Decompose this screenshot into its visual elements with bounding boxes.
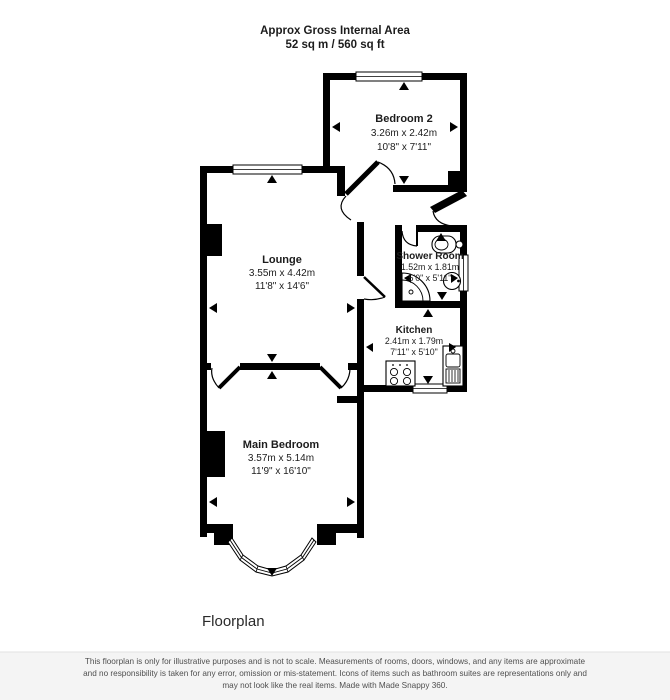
arrow-up-icon <box>267 175 277 183</box>
window-kitchen <box>413 384 447 393</box>
door-main-bedroom-right <box>320 367 350 388</box>
room-imperial: 5'0" x 5'11" <box>409 273 452 283</box>
wall-bedroom2-bottom <box>393 185 467 192</box>
room-lounge: Lounge 3.55m x 4.42m 11'8" x 14'6" <box>249 254 315 292</box>
room-metric: 3.57m x 5.14m <box>248 453 314 464</box>
door-main-bedroom-left <box>212 367 240 388</box>
wall-stub <box>337 396 364 403</box>
arrow-up-icon <box>399 82 409 90</box>
window-lounge <box>233 165 302 174</box>
arrow-down-icon <box>423 376 433 384</box>
gross-area-value: 52 sq m / 560 sq ft <box>285 39 384 51</box>
header: Approx Gross Internal Area 52 sq m / 560… <box>260 25 410 51</box>
room-imperial: 11'9" x 16'10" <box>251 466 311 477</box>
wall-bedroom2-left <box>323 73 330 173</box>
room-metric: 2.41m x 1.79m <box>385 336 443 346</box>
room-metric: 1.52m x 1.81m <box>401 262 459 272</box>
arrow-down-icon <box>437 292 447 300</box>
arrow-left-icon <box>332 122 340 132</box>
gross-area-title: Approx Gross Internal Area <box>260 25 410 37</box>
kitchen-sink-icon <box>443 346 463 386</box>
room-name: Kitchen <box>396 325 433 336</box>
wall-bedroom-top-seg2 <box>240 363 320 370</box>
floorplan-caption: Floorplan <box>202 613 265 630</box>
arrow-right-icon <box>347 303 355 313</box>
room-imperial: 10'8" x 7'11" <box>377 142 432 153</box>
floorplan-page: Approx Gross Internal Area 52 sq m / 560… <box>0 0 670 700</box>
chimney-breast-lounge <box>200 224 222 256</box>
arrow-left-icon <box>366 343 373 352</box>
wall-bay-shoulder-right <box>317 524 336 545</box>
disclaimer-line1: This floorplan is only for illustrative … <box>85 657 586 666</box>
wall-bedroom-top-seg1 <box>200 363 211 370</box>
chimney-breast-bedroom <box>200 431 225 477</box>
room-imperial: 7'11" x 5'10" <box>390 347 438 357</box>
room-metric: 3.26m x 2.42m <box>371 128 437 139</box>
wall-lounge-right-upper <box>357 222 364 276</box>
door-shower <box>402 230 417 246</box>
room-metric: 3.55m x 4.42m <box>249 268 315 279</box>
arrow-left-icon <box>209 497 217 507</box>
wall-lounge-right-lower <box>357 299 364 538</box>
arrow-up-icon <box>267 371 277 379</box>
arrow-right-icon <box>450 122 458 132</box>
disclaimer-line3: may not look like the real items. Made w… <box>222 681 447 690</box>
room-bedroom2: Bedroom 2 3.26m x 2.42m 10'8" x 7'11" <box>371 113 437 153</box>
room-name: Bedroom 2 <box>375 113 432 125</box>
stove-icon <box>386 361 415 386</box>
door-entrance <box>433 211 452 226</box>
room-main-bedroom: Main Bedroom 3.57m x 5.14m 11'9" x 16'10… <box>243 439 320 477</box>
room-name: Lounge <box>262 254 302 266</box>
arrow-up-icon <box>423 309 433 317</box>
room-name: Main Bedroom <box>243 439 320 451</box>
room-imperial: 11'8" x 14'6" <box>255 281 310 292</box>
arrow-down-icon <box>399 176 409 184</box>
window-bedroom2 <box>356 72 422 81</box>
arrow-left-icon <box>209 303 217 313</box>
wall-shower-bottom <box>395 301 467 308</box>
door-kitchen <box>364 277 385 300</box>
room-kitchen: Kitchen 2.41m x 1.79m 7'11" x 5'10" <box>385 325 443 357</box>
floorplan-canvas: Approx Gross Internal Area 52 sq m / 560… <box>0 0 670 700</box>
arrow-down-icon <box>267 354 277 362</box>
wall-shower-top <box>416 225 467 232</box>
disclaimer-line2: and no responsibility is taken for any e… <box>83 669 587 678</box>
arrow-right-icon <box>347 497 355 507</box>
room-name: Shower Room <box>396 251 463 262</box>
wall-hall-diagonal <box>430 190 467 213</box>
wall-lounge-top-return <box>337 166 345 196</box>
door-bedroom2 <box>341 162 395 220</box>
footer: Floorplan This floorplan is only for ill… <box>0 613 670 700</box>
wall-west <box>200 166 207 537</box>
